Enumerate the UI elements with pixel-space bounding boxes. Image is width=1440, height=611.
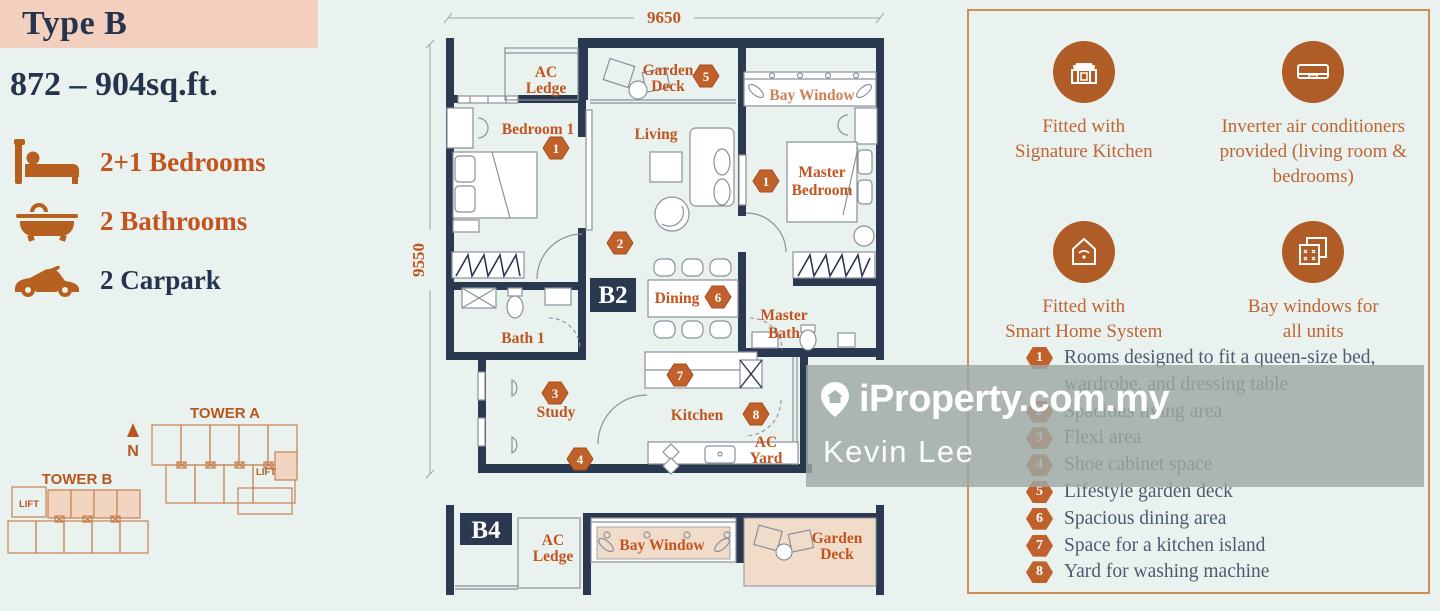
north-arrow-icon: N xyxy=(127,423,139,460)
svg-text:1: 1 xyxy=(763,174,770,189)
bay-windows-feature: Bay windows for all units xyxy=(1199,221,1429,344)
kitchen-icon xyxy=(1053,41,1115,103)
svg-text:Bath: Bath xyxy=(768,325,800,342)
air-conditioner-icon xyxy=(1282,41,1344,103)
svg-text:Bath 1: Bath 1 xyxy=(501,330,545,347)
bedrooms-feature: 2+1 Bedrooms xyxy=(12,138,266,186)
carpark-label: 2 Carpark xyxy=(100,265,221,296)
badge-bedroom1: 1 xyxy=(543,137,569,159)
feature-text-line: provided (living room & xyxy=(1220,139,1407,164)
svg-text:4: 4 xyxy=(577,452,584,467)
unit-features: 2+1 Bedrooms 2 Bathrooms xyxy=(12,138,266,304)
svg-text:AC: AC xyxy=(755,434,777,451)
svg-text:Dining: Dining xyxy=(655,290,700,307)
svg-text:Bay Window: Bay Window xyxy=(769,87,855,104)
page-title: Type B xyxy=(22,5,127,43)
signature-kitchen-feature: Fitted with Signature Kitchen xyxy=(969,41,1199,189)
svg-text:Master: Master xyxy=(798,164,845,181)
badge-yard: 8 xyxy=(743,403,769,425)
tower-a-plan: LIFT xyxy=(152,425,297,514)
svg-text:B4: B4 xyxy=(471,517,501,544)
watermark-brand-text: iProperty.com.my xyxy=(859,378,1169,421)
svg-text:Garden: Garden xyxy=(812,530,863,547)
badge-garden-deck: 5 xyxy=(693,65,719,87)
feature-text-line: Fitted with xyxy=(1042,294,1125,319)
area-range: 872 – 904sq.ft. xyxy=(10,66,218,104)
site-plan: TOWER A TOWER B N LIFT xyxy=(8,405,297,553)
type-header: Type B xyxy=(0,0,318,48)
feature-text-line: Smart Home System xyxy=(1005,319,1162,344)
bay-window-icon xyxy=(1282,221,1344,283)
legend-text: Space for a kitchen island xyxy=(1064,533,1265,560)
svg-text:Master: Master xyxy=(760,307,807,324)
amenities-grid: Fitted with Signature Kitchen Inverter a… xyxy=(969,11,1428,344)
svg-text:Kitchen: Kitchen xyxy=(671,407,724,424)
bathtub-icon xyxy=(12,200,82,242)
svg-text:Bay Window: Bay Window xyxy=(619,537,705,554)
bathrooms-feature: 2 Bathrooms xyxy=(12,197,266,245)
tower-a-label: TOWER A xyxy=(190,405,260,422)
bathrooms-label: 2 Bathrooms xyxy=(100,206,247,237)
feature-text-line: Fitted with xyxy=(1042,114,1125,139)
feature-text-line: Signature Kitchen xyxy=(1015,139,1153,164)
svg-text:Ledge: Ledge xyxy=(526,80,567,97)
svg-text:AC: AC xyxy=(542,532,564,549)
bed-icon xyxy=(12,139,82,185)
svg-text:Yard: Yard xyxy=(750,450,783,467)
watermark-brand: iProperty.com.my xyxy=(820,378,1169,421)
svg-text:N: N xyxy=(127,443,139,460)
legend-badge: 8 xyxy=(1026,561,1053,583)
svg-text:Deck: Deck xyxy=(820,546,854,563)
legend-item: 8 Yard for washing machine xyxy=(1026,559,1416,586)
svg-text:Study: Study xyxy=(537,404,576,421)
svg-text:6: 6 xyxy=(715,290,722,305)
car-icon xyxy=(12,262,82,298)
tower-a-lift-label: LIFT xyxy=(256,467,276,478)
feature-text-line: Bay windows for xyxy=(1248,294,1379,319)
feature-text-line: all units xyxy=(1283,319,1344,344)
legend-item: 7 Space for a kitchen island xyxy=(1026,533,1416,560)
svg-text:Deck: Deck xyxy=(651,78,685,95)
iproperty-pin-icon xyxy=(820,381,850,419)
badge-living: 2 xyxy=(607,232,633,254)
legend-badge: 7 xyxy=(1026,535,1053,557)
inverter-ac-feature: Inverter air conditioners provided (livi… xyxy=(1199,41,1429,189)
bedrooms-label: 2+1 Bedrooms xyxy=(100,147,266,178)
svg-text:Ledge: Ledge xyxy=(533,548,574,565)
legend-text: Yard for washing machine xyxy=(1064,559,1269,586)
smart-home-icon xyxy=(1053,221,1115,283)
feature-text-line: Inverter air conditioners xyxy=(1221,114,1405,139)
carpark-feature: 2 Carpark xyxy=(12,256,266,304)
badge-study: 3 xyxy=(542,382,568,404)
unit-b2-label: B2 xyxy=(590,278,636,312)
svg-text:5: 5 xyxy=(703,69,710,84)
svg-text:8: 8 xyxy=(753,407,760,422)
legend-text: Spacious dining area xyxy=(1064,506,1226,533)
dimension-width-label: 9650 xyxy=(647,8,681,27)
svg-text:B2: B2 xyxy=(598,282,627,309)
badge-master-bedroom: 1 xyxy=(753,170,779,192)
tower-b-plan: LIFT xyxy=(8,487,148,553)
feature-text-line: bedrooms) xyxy=(1273,164,1354,189)
legend-item: 6 Spacious dining area xyxy=(1026,506,1416,533)
svg-text:Garden: Garden xyxy=(643,62,694,79)
dimension-height-label: 9550 xyxy=(409,243,428,277)
svg-text:Bedroom 1: Bedroom 1 xyxy=(502,121,574,138)
smart-home-feature: Fitted with Smart Home System xyxy=(969,221,1199,344)
svg-text:3: 3 xyxy=(552,386,559,401)
svg-text:2: 2 xyxy=(617,236,624,251)
svg-text:AC: AC xyxy=(535,64,557,81)
svg-text:7: 7 xyxy=(677,368,684,383)
svg-text:1: 1 xyxy=(553,141,560,156)
watermark-overlay: iProperty.com.my Kevin Lee xyxy=(806,365,1424,487)
tower-b-lift-label: LIFT xyxy=(19,499,39,510)
unit-b4-strip: B4 Garden Deck Bay Window AC Ledge xyxy=(446,505,884,595)
svg-text:Living: Living xyxy=(634,126,677,143)
legend-badge: 6 xyxy=(1026,508,1053,530)
watermark-agent-name: Kevin Lee xyxy=(823,434,974,470)
floorplan-brochure: .wall{fill:#2b3950;} .thin{stroke:#8a919… xyxy=(0,0,1440,611)
tower-b-label: TOWER B xyxy=(42,471,113,488)
svg-text:Bedroom: Bedroom xyxy=(792,182,853,199)
